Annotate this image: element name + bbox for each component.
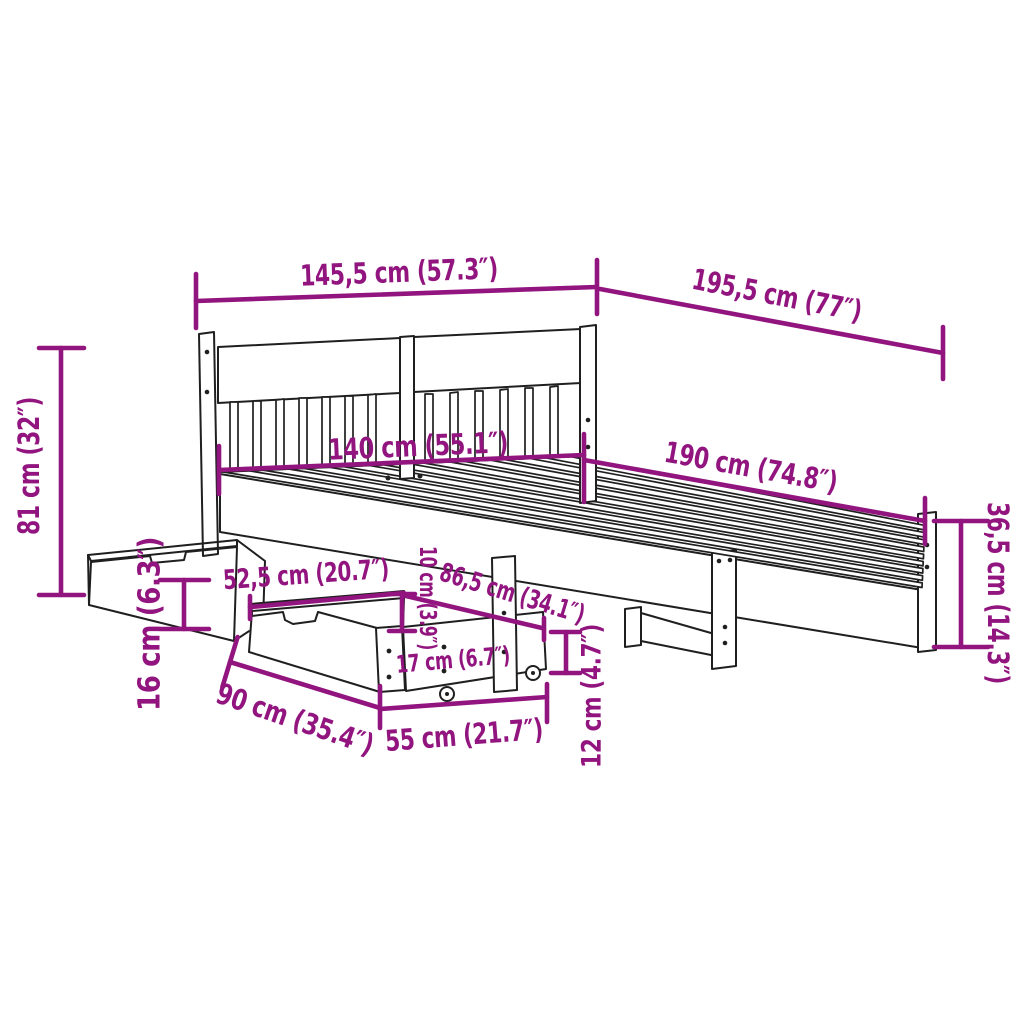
dim-frame-length: 195,5 cm (77″) — [600, 262, 943, 379]
dim-label-headboard-width: 145,5 cm (57.3″) — [299, 251, 498, 293]
dim-drawer-depth: 55 cm (21.7″) — [380, 684, 547, 758]
dim-label-drawer-depth: 55 cm (21.7″) — [384, 712, 544, 758]
rear-leg-block — [625, 607, 641, 647]
headboard-left-post — [199, 332, 218, 556]
dim-leg-height: 12 cm (4.7″) — [551, 624, 608, 768]
bed-drawing — [88, 325, 936, 701]
dim-footboard-height: 36,5 cm (14.3″) — [934, 502, 1015, 684]
center-leg — [712, 550, 736, 669]
dim-label-headboard-height: 81 cm (32″) — [12, 397, 46, 535]
dim-label-drawer-length: 90 cm (35.4″) — [212, 676, 378, 762]
drawer-front — [249, 611, 380, 692]
dim-label-leg-height: 12 cm (4.7″) — [577, 624, 608, 768]
dim-headboard-height: 81 cm (32″) — [12, 348, 84, 595]
dim-label-drawer-height: 16 cm (6.3″) — [133, 537, 168, 711]
dim-drawer-height: 16 cm (6.3″) — [133, 537, 210, 711]
dim-label-drawer-top-depth: 52,5 cm (20.7″) — [222, 554, 390, 597]
dim-label-footboard-height: 36,5 cm (14.3″) — [981, 502, 1015, 684]
headboard-panel-right — [414, 329, 581, 392]
headboard-panel-left — [218, 338, 400, 403]
dim-label-frame-length: 195,5 cm (77″) — [689, 262, 864, 328]
dim-headboard-width: 145,5 cm (57.3″) — [196, 251, 597, 328]
bed-dimension-diagram: 145,5 cm (57.3″) 195,5 cm (77″) 81 cm (3… — [0, 0, 1024, 1024]
